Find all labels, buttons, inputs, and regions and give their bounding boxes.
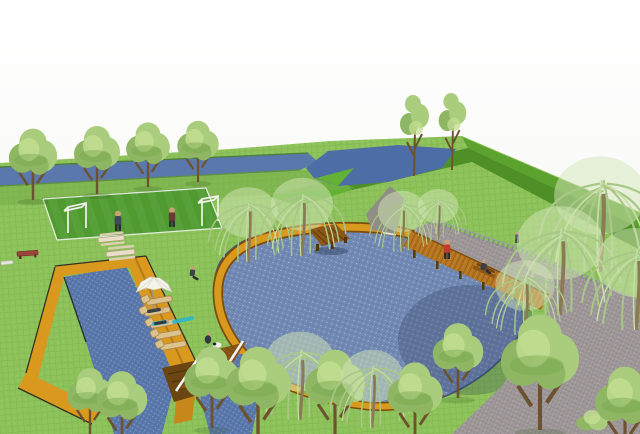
park-render: Aerial 3D visualization of a park design… [0,0,640,434]
park-render-canvas: Aerial 3D visualization of a park design… [0,0,640,434]
